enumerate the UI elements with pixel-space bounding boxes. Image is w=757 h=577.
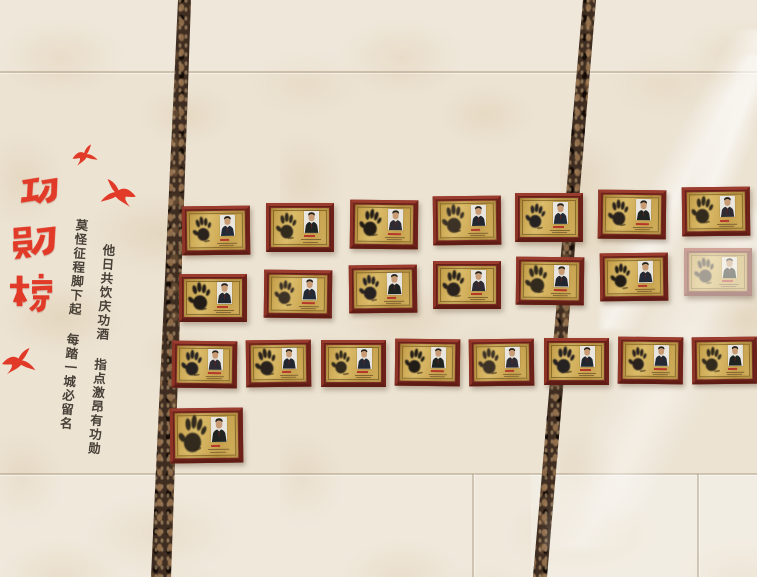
caption-line: [356, 377, 370, 378]
portrait-person-icon: [580, 346, 594, 367]
caption-line: [386, 303, 401, 304]
caption-line: [579, 375, 593, 376]
handprint-plaque: [179, 274, 247, 322]
caption-line: [717, 223, 737, 224]
caption-line: [281, 377, 295, 378]
portrait-photo: [431, 348, 446, 369]
handprint-icon: [401, 346, 429, 377]
caption-line: [387, 239, 402, 240]
handprint-icon: [688, 194, 717, 227]
plaque-gold-plate: [687, 191, 745, 231]
name-caption: [654, 369, 667, 371]
portrait-photo: [505, 347, 520, 368]
plaque-gold-plate: [438, 201, 496, 241]
caption-line: [553, 295, 568, 296]
plaque-gold-plate: [177, 346, 232, 384]
honor-wall-photo: 功勋榜 莫怪征程脚下起 每踏一城必留名 他日共饮庆功酒 指点激昂有功勋: [0, 0, 757, 577]
portrait-person-icon: [357, 348, 371, 369]
plaque-gold-plate: [623, 342, 678, 380]
handprint-plaque: [172, 341, 238, 389]
handprint-plaque: [682, 186, 751, 236]
caption-line: [719, 225, 734, 226]
plaque-gold-plate: [603, 195, 661, 235]
plaque-gold-plate: [326, 345, 381, 382]
handprint-plaque: [433, 261, 501, 309]
handprint-plaque: [433, 196, 502, 246]
portrait-person-icon: [208, 349, 223, 370]
handprint-icon: [274, 212, 299, 242]
caption-line: [635, 229, 650, 230]
caption-line: [653, 375, 667, 376]
name-caption: [220, 239, 229, 241]
handprint-plaque: [515, 193, 583, 242]
name-caption: [636, 223, 649, 225]
name-caption: [304, 235, 315, 237]
name-caption: [638, 284, 647, 286]
caption-line: [470, 235, 485, 236]
handprint-icon: [691, 256, 719, 287]
portrait-person-icon: [720, 195, 735, 217]
caption-line: [301, 239, 321, 240]
handprint-plaque: [321, 340, 386, 387]
handprint-plaque: [395, 339, 461, 387]
handprint-icon: [329, 349, 352, 376]
plaque-gold-plate: [354, 270, 412, 309]
portrait-photo: [553, 202, 568, 224]
portrait-photo: [304, 211, 319, 233]
plaque-gold-plate: [521, 261, 579, 300]
handprint-plaque: [516, 256, 585, 305]
portrait-person-icon: [211, 417, 228, 442]
handprint-icon: [356, 273, 384, 304]
plaque-gold-plate: [251, 345, 306, 383]
caption-line: [552, 232, 567, 233]
caption-line: [303, 242, 318, 243]
handprint-plaque: [266, 203, 334, 252]
portrait-photo: [580, 346, 594, 367]
plaque-gold-plate: [520, 198, 578, 237]
plaque-gold-plate: [271, 208, 329, 247]
portrait-person-icon: [282, 348, 297, 369]
name-caption: [211, 445, 220, 447]
portrait-person-icon: [220, 214, 235, 236]
portrait-person-icon: [388, 208, 403, 230]
portrait-person-icon: [302, 278, 317, 299]
portrait-photo: [638, 261, 653, 282]
portrait-person-icon: [471, 270, 486, 291]
portrait-person-icon: [554, 265, 569, 286]
name-caption: [217, 306, 228, 308]
plaques-layer: [0, 0, 757, 577]
caption-line: [219, 245, 234, 246]
caption-line: [214, 310, 234, 311]
plaque-gold-plate: [689, 253, 747, 291]
signature-mark: [706, 281, 713, 284]
plaque-gold-plate: [697, 341, 752, 379]
caption-line: [216, 312, 231, 313]
portrait-photo: [554, 265, 569, 286]
portrait-photo: [387, 274, 402, 295]
caption-line: [727, 374, 741, 375]
caption-line: [637, 290, 652, 291]
caption-line: [633, 227, 653, 228]
caption-line: [503, 373, 522, 374]
name-caption: [208, 372, 221, 374]
portrait-photo: [211, 417, 228, 442]
caption-line: [550, 230, 570, 231]
name-caption: [471, 293, 482, 295]
handprint-plaque: [598, 190, 667, 240]
caption-line: [430, 376, 444, 377]
portrait-person-icon: [722, 257, 737, 278]
name-caption: [554, 289, 567, 291]
portrait-photo: [208, 349, 223, 370]
handprint-icon: [608, 262, 633, 290]
portrait-photo: [728, 345, 743, 366]
handprint-plaque: [600, 252, 669, 301]
handprint-icon: [251, 346, 281, 380]
handprint-icon: [522, 202, 549, 232]
caption-line: [217, 242, 237, 243]
caption-line: [385, 236, 405, 237]
portrait-person-icon: [654, 346, 669, 367]
caption-line: [719, 284, 739, 285]
plaque-gold-plate: [355, 204, 413, 244]
handprint-icon: [179, 348, 205, 378]
handprint-plaque: [692, 336, 757, 384]
name-caption: [282, 372, 290, 374]
name-caption: [580, 369, 590, 371]
name-caption: [471, 229, 480, 231]
handprint-icon: [439, 203, 468, 237]
portrait-photo: [388, 208, 403, 230]
plaque-gold-plate: [269, 274, 327, 313]
portrait-person-icon: [431, 348, 446, 369]
portrait-photo: [654, 346, 669, 367]
handprint-icon: [549, 344, 579, 378]
handprint-plaque: [264, 269, 333, 318]
handprint-plaque: [544, 338, 609, 385]
caption-line: [207, 378, 221, 379]
plaque-gold-plate: [438, 266, 496, 304]
portrait-person-icon: [217, 282, 232, 303]
caption-line: [299, 305, 319, 306]
name-caption: [505, 370, 513, 372]
handprint-plaque: [246, 340, 312, 388]
portrait-person-icon: [728, 345, 743, 366]
plaque-gold-plate: [184, 279, 242, 317]
caption-line: [721, 286, 736, 287]
handprint-icon: [476, 346, 502, 376]
name-caption: [728, 368, 736, 370]
portrait-photo: [636, 199, 651, 221]
handprint-icon: [173, 412, 211, 457]
portrait-photo: [220, 214, 235, 236]
handprint-plaque: [182, 206, 251, 256]
caption-line: [635, 288, 655, 289]
portrait-photo: [471, 270, 486, 291]
plaque-gold-plate: [605, 257, 663, 296]
caption-line: [470, 299, 485, 300]
name-caption: [720, 219, 729, 221]
handprint-icon: [626, 346, 649, 373]
portrait-photo: [720, 195, 735, 217]
caption-line: [210, 452, 226, 453]
portrait-photo: [282, 348, 297, 369]
caption-line: [208, 449, 229, 450]
name-caption: [387, 297, 396, 299]
name-caption: [722, 280, 733, 282]
name-caption: [357, 371, 367, 373]
caption-line: [578, 373, 597, 374]
portrait-photo: [217, 282, 232, 303]
handprint-plaque: [350, 199, 419, 249]
handprint-plaque: [469, 338, 535, 386]
caption-line: [504, 376, 518, 377]
plaque-gold-plate: [400, 344, 455, 382]
handprint-icon: [185, 281, 215, 314]
portrait-person-icon: [638, 261, 653, 282]
handprint-plaque: [349, 265, 418, 314]
caption-line: [301, 308, 316, 309]
portrait-person-icon: [636, 199, 651, 221]
portrait-person-icon: [553, 202, 568, 224]
caption-line: [355, 375, 374, 376]
portrait-person-icon: [505, 347, 520, 368]
handprint-icon: [521, 263, 551, 297]
name-caption: [553, 226, 564, 228]
handprint-plaque: [684, 248, 752, 296]
handprint-plaque: [170, 408, 244, 464]
portrait-person-icon: [387, 274, 402, 295]
name-caption: [302, 302, 315, 304]
handprint-icon: [699, 345, 725, 375]
plaque-gold-plate: [549, 343, 604, 380]
handprint-icon: [355, 206, 386, 240]
portrait-photo: [471, 205, 486, 227]
handprint-icon: [272, 278, 298, 307]
portrait-photo: [357, 348, 371, 369]
plaque-gold-plate: [474, 343, 529, 381]
name-caption: [431, 370, 444, 372]
caption-line: [205, 376, 224, 377]
handprint-icon: [440, 268, 468, 300]
caption-line: [726, 372, 745, 373]
caption-line: [551, 293, 571, 294]
handprint-icon: [606, 198, 632, 228]
portrait-person-icon: [471, 205, 486, 227]
portrait-person-icon: [304, 211, 319, 233]
caption-line: [468, 297, 488, 298]
plaque-gold-plate: [175, 413, 239, 459]
handprint-plaque: [618, 337, 684, 385]
plaque-gold-plate: [187, 211, 245, 251]
name-caption: [388, 232, 401, 234]
portrait-photo: [722, 257, 737, 278]
handprint-icon: [189, 214, 217, 245]
portrait-photo: [302, 278, 317, 299]
caption-line: [428, 374, 447, 375]
